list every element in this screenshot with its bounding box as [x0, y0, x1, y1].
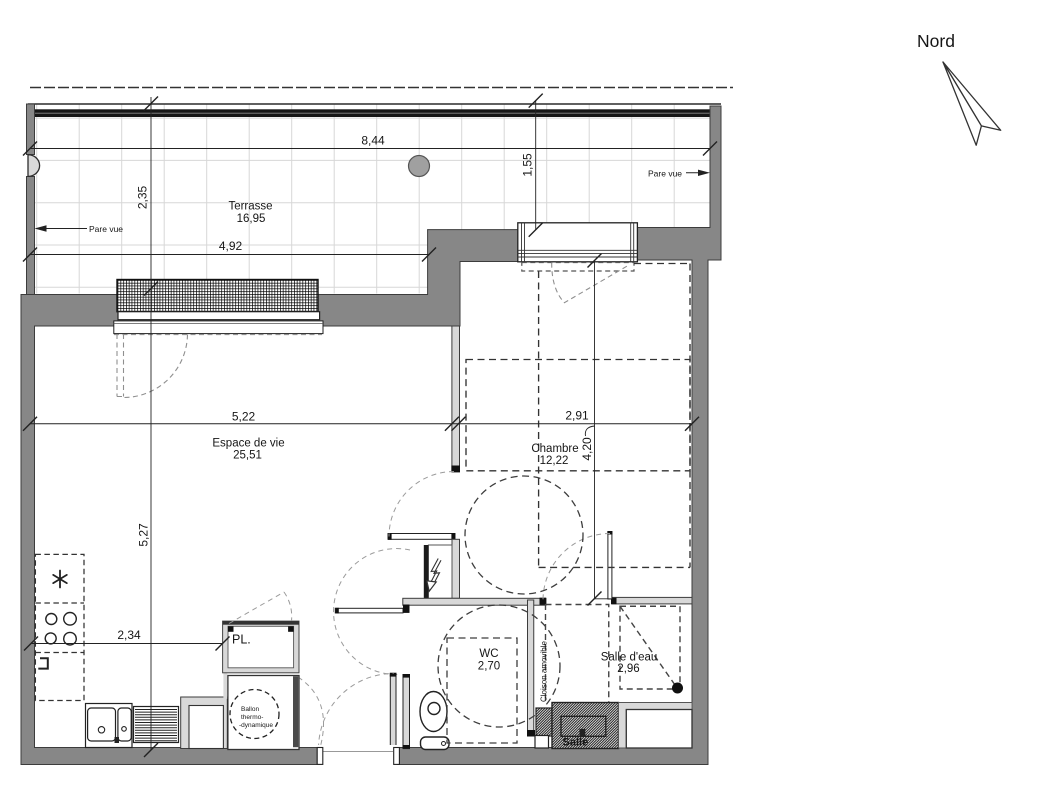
svg-text:WC: WC	[479, 648, 498, 660]
svg-text:5,22: 5,22	[232, 410, 256, 424]
svg-text:Salle: Salle	[563, 737, 589, 749]
svg-text:PL.: PL.	[232, 633, 251, 647]
svg-text:Espace de vie: Espace de vie	[212, 438, 284, 450]
svg-text:2,70: 2,70	[478, 661, 500, 673]
svg-text:4,20: 4,20	[580, 437, 594, 461]
svg-text:2,91: 2,91	[565, 409, 589, 423]
svg-text:Ballon: Ballon	[241, 706, 259, 713]
svg-text:2,34: 2,34	[117, 628, 141, 642]
svg-text:Chambre: Chambre	[531, 443, 578, 455]
svg-text:5,27: 5,27	[137, 523, 151, 547]
svg-text:1,55: 1,55	[521, 153, 535, 177]
svg-text:Nord: Nord	[917, 31, 955, 51]
svg-text:Salle d'eau: Salle d'eau	[601, 652, 658, 664]
svg-text:4,92: 4,92	[219, 239, 243, 253]
svg-text:Pare vue: Pare vue	[89, 224, 123, 234]
svg-text:2,35: 2,35	[136, 185, 150, 209]
svg-text:-dynamique: -dynamique	[239, 722, 273, 729]
svg-text:8,44: 8,44	[361, 134, 385, 148]
svg-text:Terrasse: Terrasse	[228, 201, 272, 213]
svg-text:2,96: 2,96	[617, 663, 639, 675]
svg-text:12,22: 12,22	[540, 455, 569, 467]
svg-text:Pare vue: Pare vue	[648, 169, 682, 179]
svg-text:16,95: 16,95	[237, 213, 266, 225]
svg-text:Cloison amovible: Cloison amovible	[540, 641, 549, 702]
svg-text:thermo-: thermo-	[241, 714, 263, 721]
svg-text:25,51: 25,51	[233, 450, 262, 462]
